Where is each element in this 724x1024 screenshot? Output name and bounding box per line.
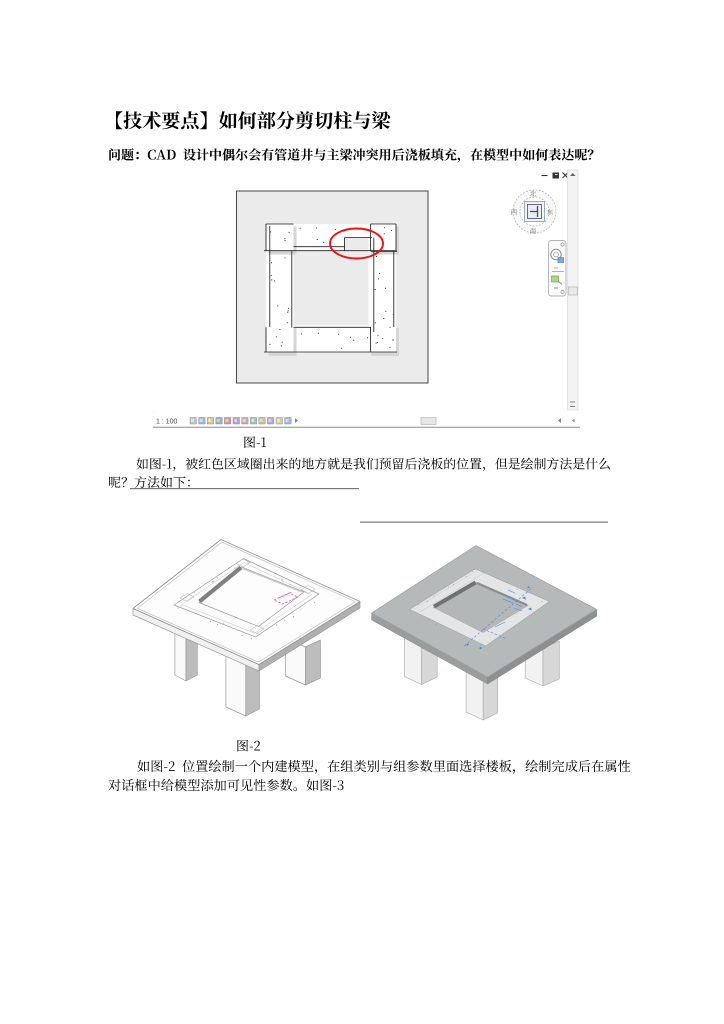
svg-text:1 : 100: 1 : 100: [156, 419, 178, 426]
